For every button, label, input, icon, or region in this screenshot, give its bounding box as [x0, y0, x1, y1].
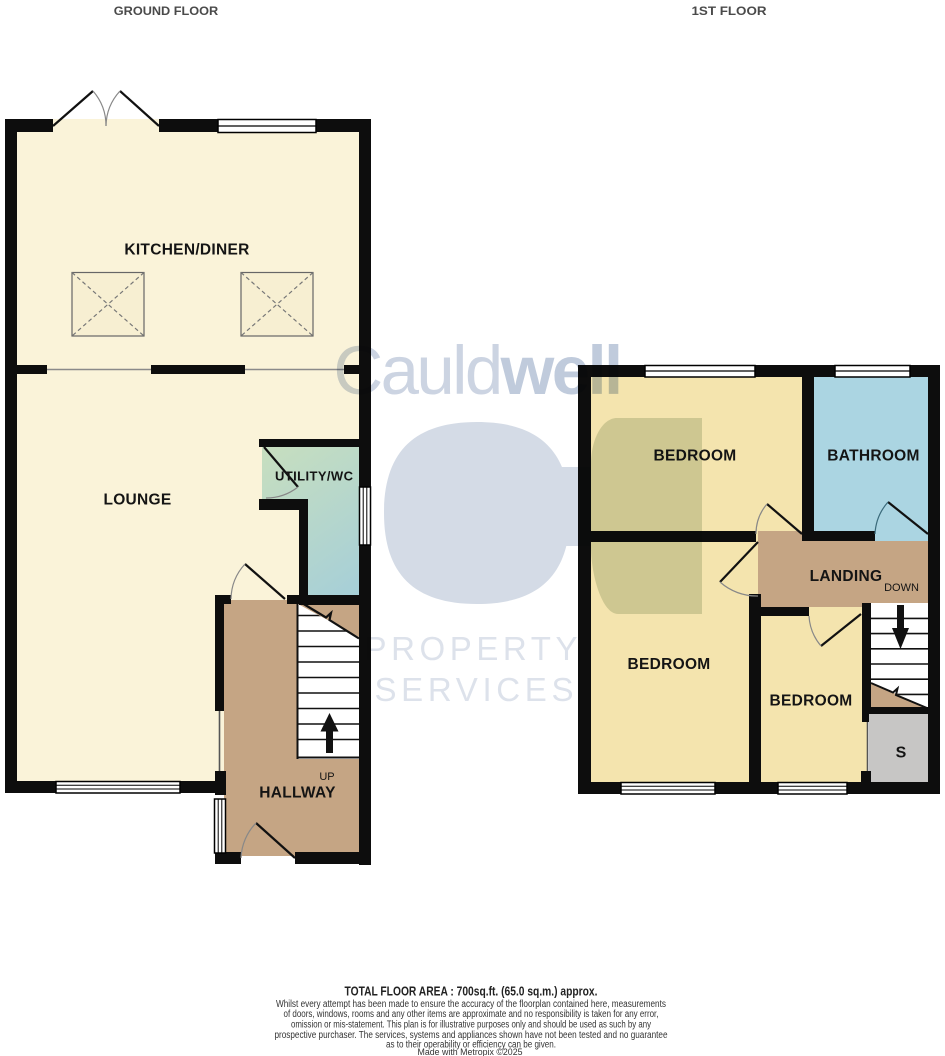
svg-text:1ST FLOOR: 1ST FLOOR	[692, 6, 768, 18]
svg-text:LOUNGE: LOUNGE	[103, 491, 171, 508]
svg-text:Cauldwell: Cauldwell	[333, 332, 620, 409]
svg-text:TOTAL FLOOR AREA : 700sq.ft. (: TOTAL FLOOR AREA : 700sq.ft. (65.0 sq.m.…	[345, 985, 598, 999]
svg-text:PROPERTY: PROPERTY	[365, 630, 578, 667]
svg-text:LANDING: LANDING	[810, 568, 883, 585]
svg-text:BATHROOM: BATHROOM	[827, 448, 920, 465]
svg-text:KITCHEN/DINER: KITCHEN/DINER	[124, 242, 249, 259]
svg-text:Made with Metropix ©2025: Made with Metropix ©2025	[418, 1047, 523, 1056]
svg-text:BEDROOM: BEDROOM	[769, 693, 852, 710]
svg-text:UP: UP	[319, 771, 334, 783]
svg-text:BEDROOM: BEDROOM	[627, 656, 710, 673]
svg-text:HALLWAY: HALLWAY	[259, 785, 336, 802]
svg-text:GROUND FLOOR: GROUND FLOOR	[114, 6, 219, 18]
svg-text:S: S	[896, 745, 907, 762]
svg-text:SERVICES: SERVICES	[375, 671, 574, 708]
svg-text:DOWN: DOWN	[884, 582, 919, 594]
svg-text:UTILITY/WC: UTILITY/WC	[275, 469, 354, 484]
